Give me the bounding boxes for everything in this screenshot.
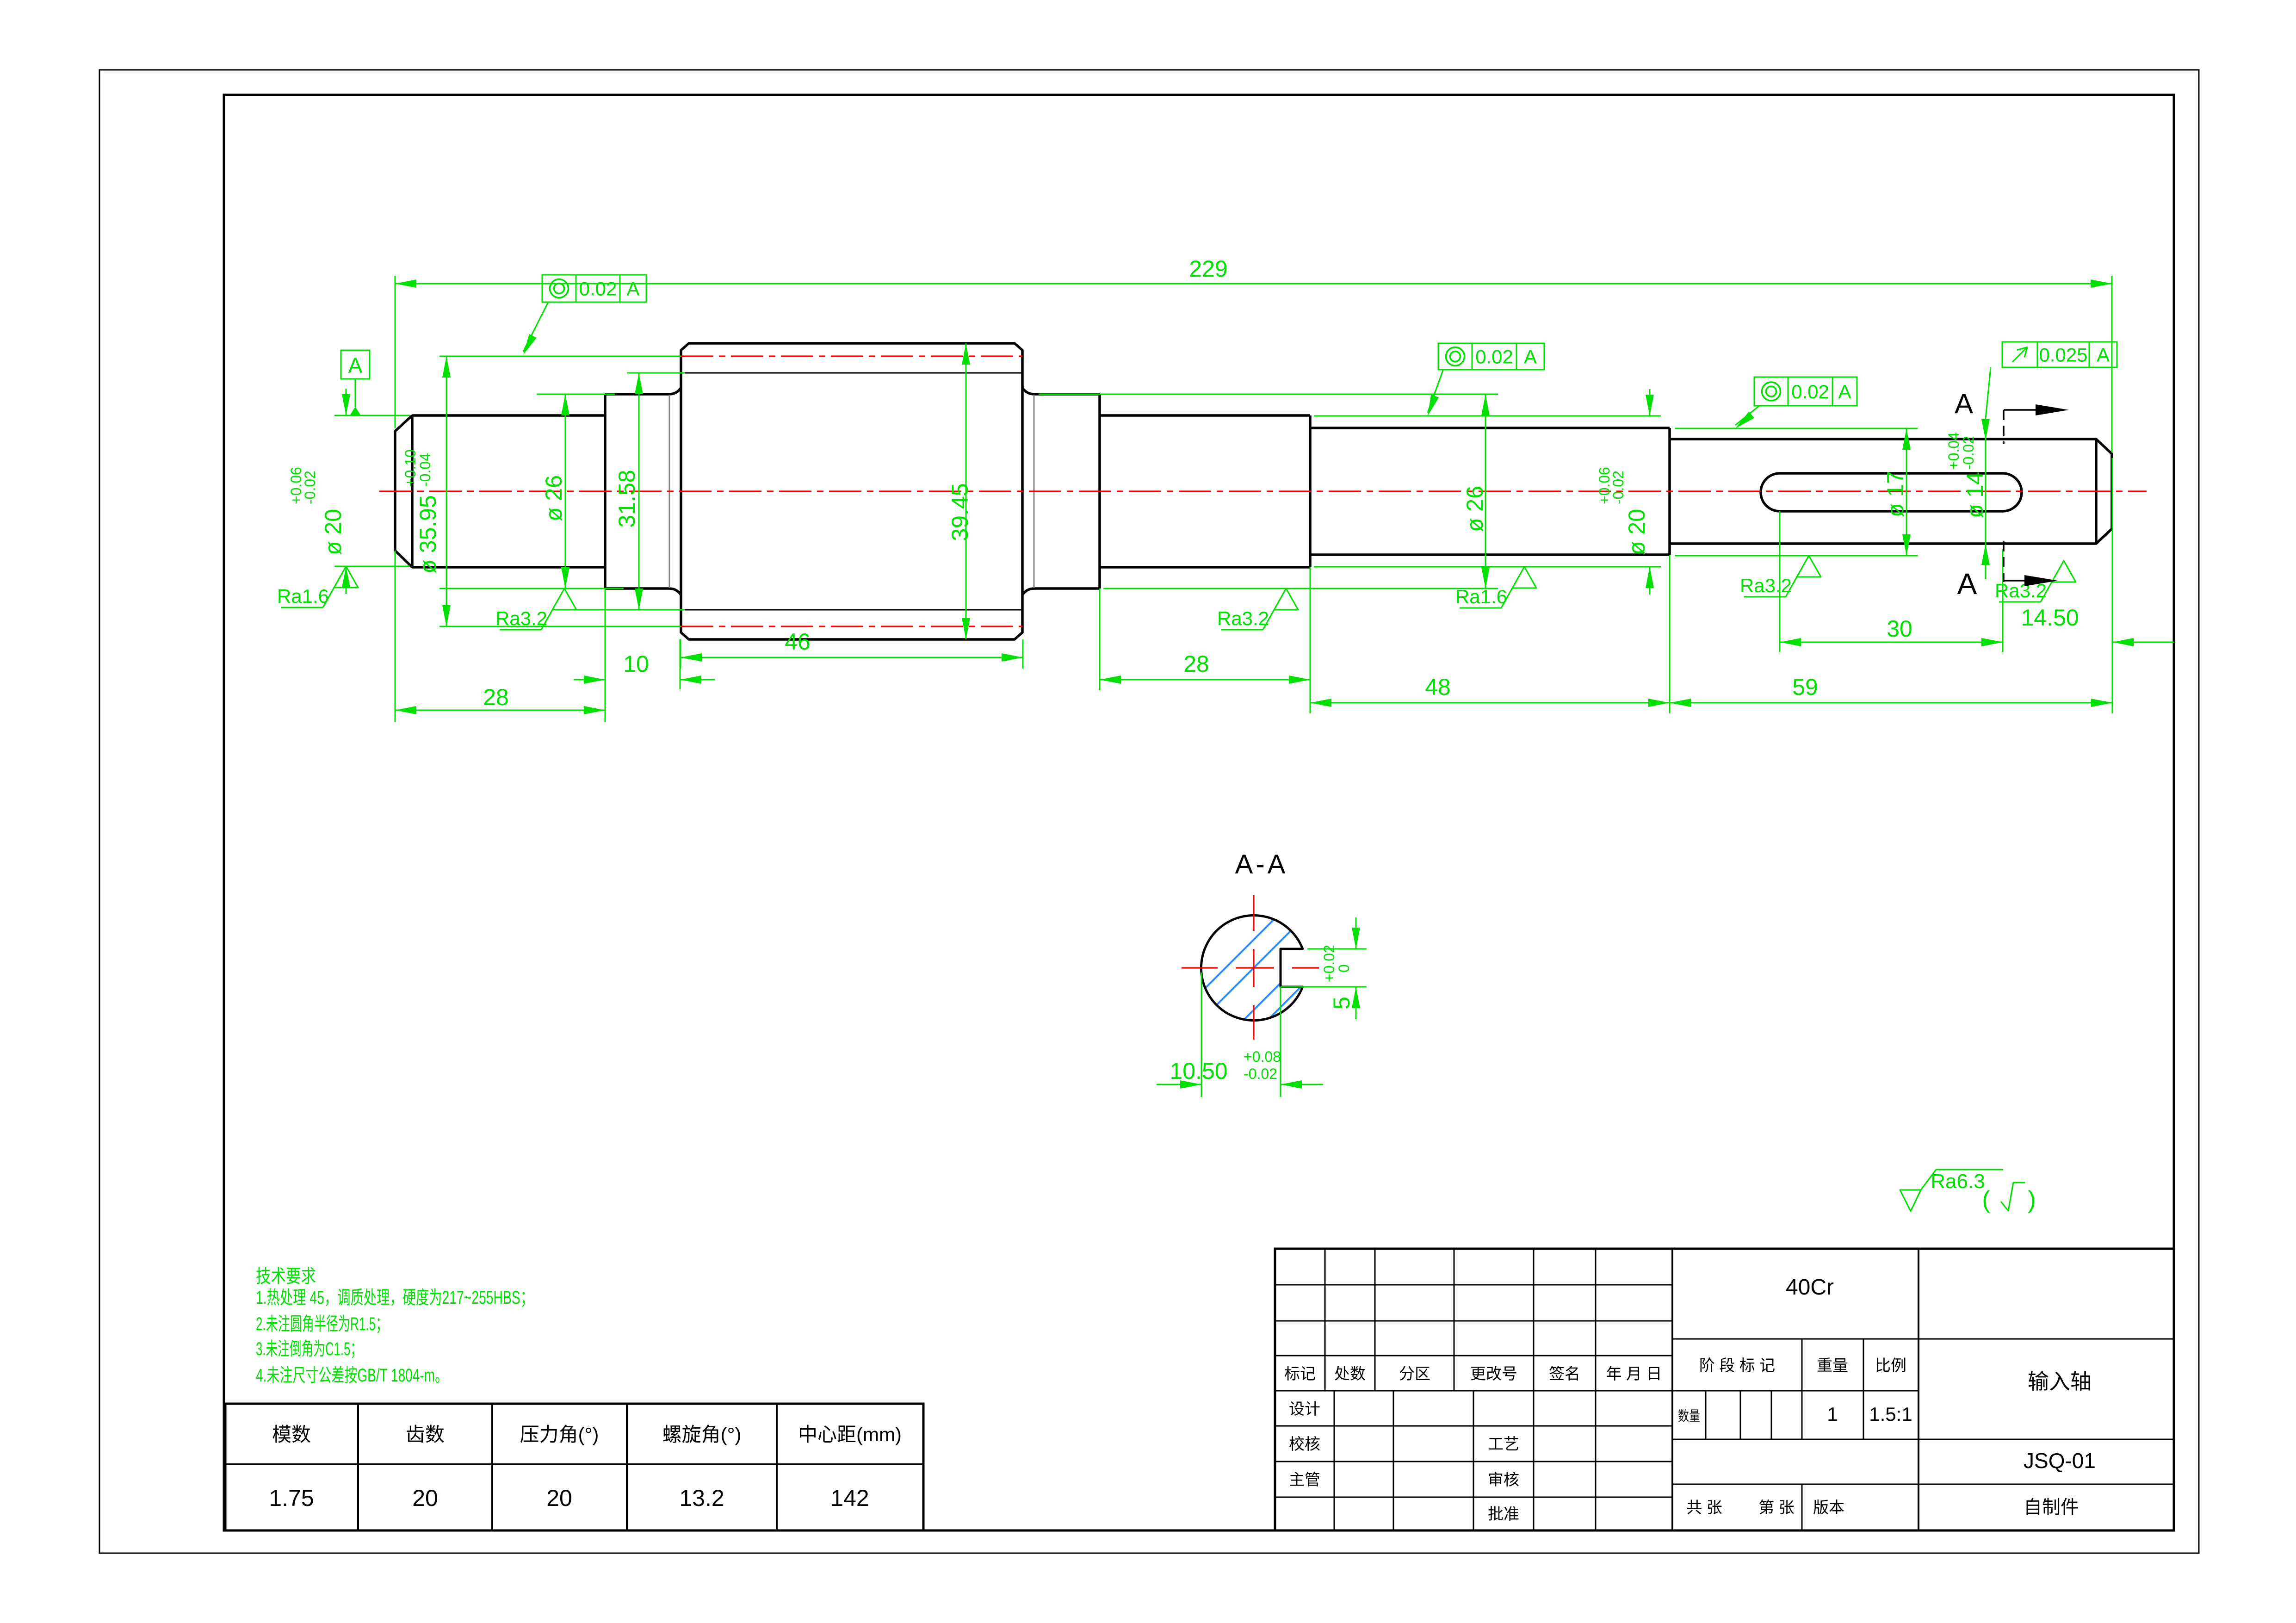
svg-text:ø 14: ø 14 xyxy=(1962,472,1988,518)
svg-text:1.5:1: 1.5:1 xyxy=(1869,1403,1912,1425)
svg-text:A: A xyxy=(1838,381,1851,403)
svg-text:版本: 版本 xyxy=(1813,1499,1844,1517)
svg-text:更改号: 更改号 xyxy=(1470,1365,1517,1383)
svg-text:10: 10 xyxy=(623,651,649,677)
svg-text:分区: 分区 xyxy=(1399,1365,1430,1383)
svg-text:年 月 日: 年 月 日 xyxy=(1606,1365,1662,1383)
svg-text:设计: 设计 xyxy=(1289,1400,1320,1418)
svg-text:ø 26: ø 26 xyxy=(1462,486,1488,532)
svg-text:中心距(mm): 中心距(mm) xyxy=(798,1424,902,1445)
svg-text:Ra1.6: Ra1.6 xyxy=(1455,586,1507,607)
svg-text:Ra6.3: Ra6.3 xyxy=(1931,1170,1985,1193)
svg-text:1.热处理 45，调质处理，硬度为217~255HBS；: 1.热处理 45，调质处理，硬度为217~255HBS； xyxy=(256,1288,533,1308)
svg-text:比例: 比例 xyxy=(1875,1357,1906,1375)
svg-text:2.未注圆角半径为R1.5；: 2.未注圆角半径为R1.5； xyxy=(256,1314,388,1334)
svg-text:14.50: 14.50 xyxy=(2021,605,2079,631)
svg-text:(: ( xyxy=(1982,1186,1990,1213)
svg-text:模数: 模数 xyxy=(272,1424,311,1445)
svg-text:0.025: 0.025 xyxy=(2039,344,2087,366)
svg-text:31.58: 31.58 xyxy=(614,470,640,527)
svg-text:13.2: 13.2 xyxy=(679,1485,724,1511)
svg-text:5: 5 xyxy=(1329,997,1355,1010)
svg-text:0.02: 0.02 xyxy=(1475,346,1513,368)
svg-text:ø 26: ø 26 xyxy=(541,475,567,521)
svg-text:30: 30 xyxy=(1887,616,1912,642)
svg-text:A-A: A-A xyxy=(1235,849,1288,880)
svg-text:20: 20 xyxy=(546,1485,572,1511)
svg-text:审核: 审核 xyxy=(1488,1471,1519,1489)
svg-text:输入轴: 输入轴 xyxy=(2028,1369,2092,1394)
svg-text:校核: 校核 xyxy=(1289,1436,1320,1453)
svg-text:技术要求: 技术要求 xyxy=(256,1266,316,1287)
svg-text:20: 20 xyxy=(412,1485,438,1511)
svg-text:10.50: 10.50 xyxy=(1170,1058,1227,1084)
svg-text:39.45: 39.45 xyxy=(947,483,973,541)
svg-text:+0.02: +0.02 xyxy=(1321,945,1337,982)
svg-text:ø 35.95: ø 35.95 xyxy=(415,495,441,574)
svg-text:标记: 标记 xyxy=(1284,1365,1316,1383)
svg-text:螺旋角(°): 螺旋角(°) xyxy=(662,1424,742,1445)
svg-text:第 张: 第 张 xyxy=(1758,1499,1794,1517)
svg-text:-0.02: -0.02 xyxy=(1960,436,1977,470)
svg-text:0.02: 0.02 xyxy=(1791,381,1829,403)
svg-text:-0.04: -0.04 xyxy=(417,453,433,487)
svg-text:批准: 批准 xyxy=(1488,1505,1519,1523)
svg-text:工艺: 工艺 xyxy=(1488,1436,1519,1453)
svg-text:48: 48 xyxy=(1425,674,1451,700)
svg-text:40Cr: 40Cr xyxy=(1786,1275,1834,1300)
svg-text:): ) xyxy=(2028,1186,2036,1213)
svg-text:签名: 签名 xyxy=(1549,1365,1580,1383)
svg-text:1: 1 xyxy=(1827,1403,1838,1425)
svg-text:+0.10: +0.10 xyxy=(402,449,419,487)
svg-text:3.未注倒角为C1.5；: 3.未注倒角为C1.5； xyxy=(256,1339,362,1359)
svg-text:0: 0 xyxy=(1336,964,1352,973)
svg-text:Ra3.2: Ra3.2 xyxy=(1740,575,1792,596)
svg-text:46: 46 xyxy=(785,629,811,655)
svg-text:+0.04: +0.04 xyxy=(1945,432,1962,470)
svg-text:-0.02: -0.02 xyxy=(302,471,318,504)
svg-text:229: 229 xyxy=(1189,256,1227,282)
svg-text:Ra3.2: Ra3.2 xyxy=(1217,607,1269,629)
svg-text:处数: 处数 xyxy=(1334,1365,1366,1383)
svg-text:数量: 数量 xyxy=(1678,1409,1700,1424)
svg-text:28: 28 xyxy=(1183,651,1209,677)
svg-text:+0.08: +0.08 xyxy=(1244,1048,1281,1065)
svg-text:4.未注尺寸公差按GB/T 1804-m。: 4.未注尺寸公差按GB/T 1804-m。 xyxy=(256,1365,448,1386)
svg-text:重量: 重量 xyxy=(1817,1357,1848,1375)
svg-text:JSQ-01: JSQ-01 xyxy=(2024,1449,2096,1473)
svg-text:A: A xyxy=(1524,346,1537,368)
svg-text:Ra3.2: Ra3.2 xyxy=(495,607,547,629)
svg-text:142: 142 xyxy=(830,1485,869,1511)
svg-text:-0.02: -0.02 xyxy=(1244,1065,1277,1082)
svg-text:1.75: 1.75 xyxy=(269,1485,314,1511)
svg-text:阶 段 标 记: 阶 段 标 记 xyxy=(1699,1357,1775,1375)
svg-text:ø 20: ø 20 xyxy=(1624,509,1650,555)
svg-text:A: A xyxy=(626,278,639,300)
svg-text:共 张: 共 张 xyxy=(1686,1499,1722,1517)
svg-text:主管: 主管 xyxy=(1289,1471,1320,1489)
svg-text:A: A xyxy=(1955,388,1973,419)
svg-text:A: A xyxy=(1957,567,1977,601)
svg-text:0.02: 0.02 xyxy=(579,278,617,300)
svg-text:ø 17: ø 17 xyxy=(1882,471,1908,517)
svg-text:28: 28 xyxy=(483,684,509,710)
svg-text:59: 59 xyxy=(1792,674,1818,700)
svg-text:A: A xyxy=(348,353,363,378)
svg-text:自制件: 自制件 xyxy=(2024,1497,2079,1518)
svg-text:A: A xyxy=(2097,344,2110,366)
svg-text:Ra1.6: Ra1.6 xyxy=(277,585,329,607)
svg-text:压力角(°): 压力角(°) xyxy=(520,1424,599,1445)
svg-text:-0.02: -0.02 xyxy=(1610,471,1627,504)
svg-text:ø 20: ø 20 xyxy=(320,509,346,555)
svg-text:齿数: 齿数 xyxy=(406,1424,445,1445)
